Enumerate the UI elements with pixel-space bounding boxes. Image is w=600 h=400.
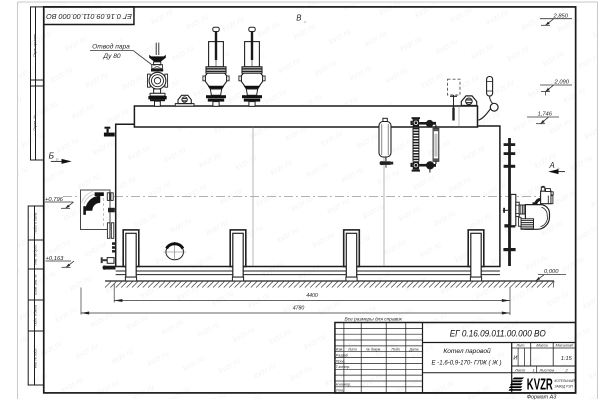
svg-text:4780: 4780 — [293, 305, 305, 311]
svg-text:1,746: 1,746 — [537, 111, 552, 117]
svg-text:2,090: 2,090 — [553, 79, 569, 85]
svg-text:Отвод пара: Отвод пара — [92, 42, 130, 50]
svg-text:№ докум.: № докум. — [366, 347, 381, 351]
svg-text:ЕГ 0.16.09.011.00.000 ВО: ЕГ 0.16.09.011.00.000 ВО — [450, 329, 547, 340]
svg-text:4400: 4400 — [306, 293, 318, 299]
svg-text:Пров.: Пров. — [336, 359, 345, 363]
svg-text:Разраб.: Разраб. — [336, 354, 349, 358]
svg-text:Листов: Листов — [539, 368, 555, 373]
svg-text:Ду 80: Ду 80 — [102, 53, 121, 60]
svg-text:Дата: Дата — [409, 347, 419, 351]
svg-text:КОТЕЛЬНЫЙ: КОТЕЛЬНЫЙ — [555, 379, 576, 383]
svg-text:Инв. № подл.: Инв. № подл. — [34, 348, 38, 369]
svg-text:Лист: Лист — [347, 347, 357, 351]
svg-text:Масштаб: Масштаб — [556, 344, 575, 348]
svg-text:1: 1 — [533, 368, 535, 373]
svg-text:Формат А3: Формат А3 — [527, 395, 557, 400]
svg-text:А: А — [549, 161, 555, 170]
svg-text:Утв.: Утв. — [336, 389, 344, 393]
svg-text:Подп. и дата: Подп. и дата — [34, 305, 38, 326]
svg-text:Подп. и дата: Подп. и дата — [34, 213, 38, 234]
svg-text:И: И — [513, 356, 517, 362]
svg-text:Изм.: Изм. — [336, 347, 343, 351]
svg-text:Все размеры для справок: Все размеры для справок — [345, 317, 403, 323]
svg-text:0,000: 0,000 — [544, 269, 559, 275]
svg-text:Котел паровой: Котел паровой — [443, 347, 491, 355]
svg-text:ЕГ 0.16.09.011.00.000 ВО: ЕГ 0.16.09.011.00.000 ВО — [46, 12, 132, 21]
svg-text:Е -1,6-0,9-170- ГЛЖ ( Ж ): Е -1,6-0,9-170- ГЛЖ ( Ж ) — [432, 359, 502, 366]
svg-text:ЗАВОД РЭП: ЗАВОД РЭП — [555, 385, 574, 389]
svg-text:1:15: 1:15 — [561, 356, 573, 362]
svg-text:KVZR: KVZR — [527, 377, 553, 394]
svg-text:Подп.: Подп. — [391, 347, 400, 351]
svg-text:Т.контр.: Т.контр. — [336, 365, 351, 369]
svg-text:Лист: Лист — [514, 368, 526, 373]
svg-text:В: В — [296, 14, 301, 23]
svg-text:Перв. примен.: Перв. примен. — [33, 33, 37, 57]
svg-text:Лит.: Лит. — [516, 344, 526, 348]
svg-text:Н.контр.: Н.контр. — [336, 383, 351, 387]
svg-text:Масса: Масса — [536, 344, 547, 348]
svg-text:Взам. инв. №: Взам. инв. № — [34, 274, 38, 295]
svg-text:Инв. № дубл.: Инв. № дубл. — [34, 244, 38, 264]
svg-text:Б: Б — [49, 151, 55, 161]
svg-text:Справ. №: Справ. № — [33, 115, 37, 131]
